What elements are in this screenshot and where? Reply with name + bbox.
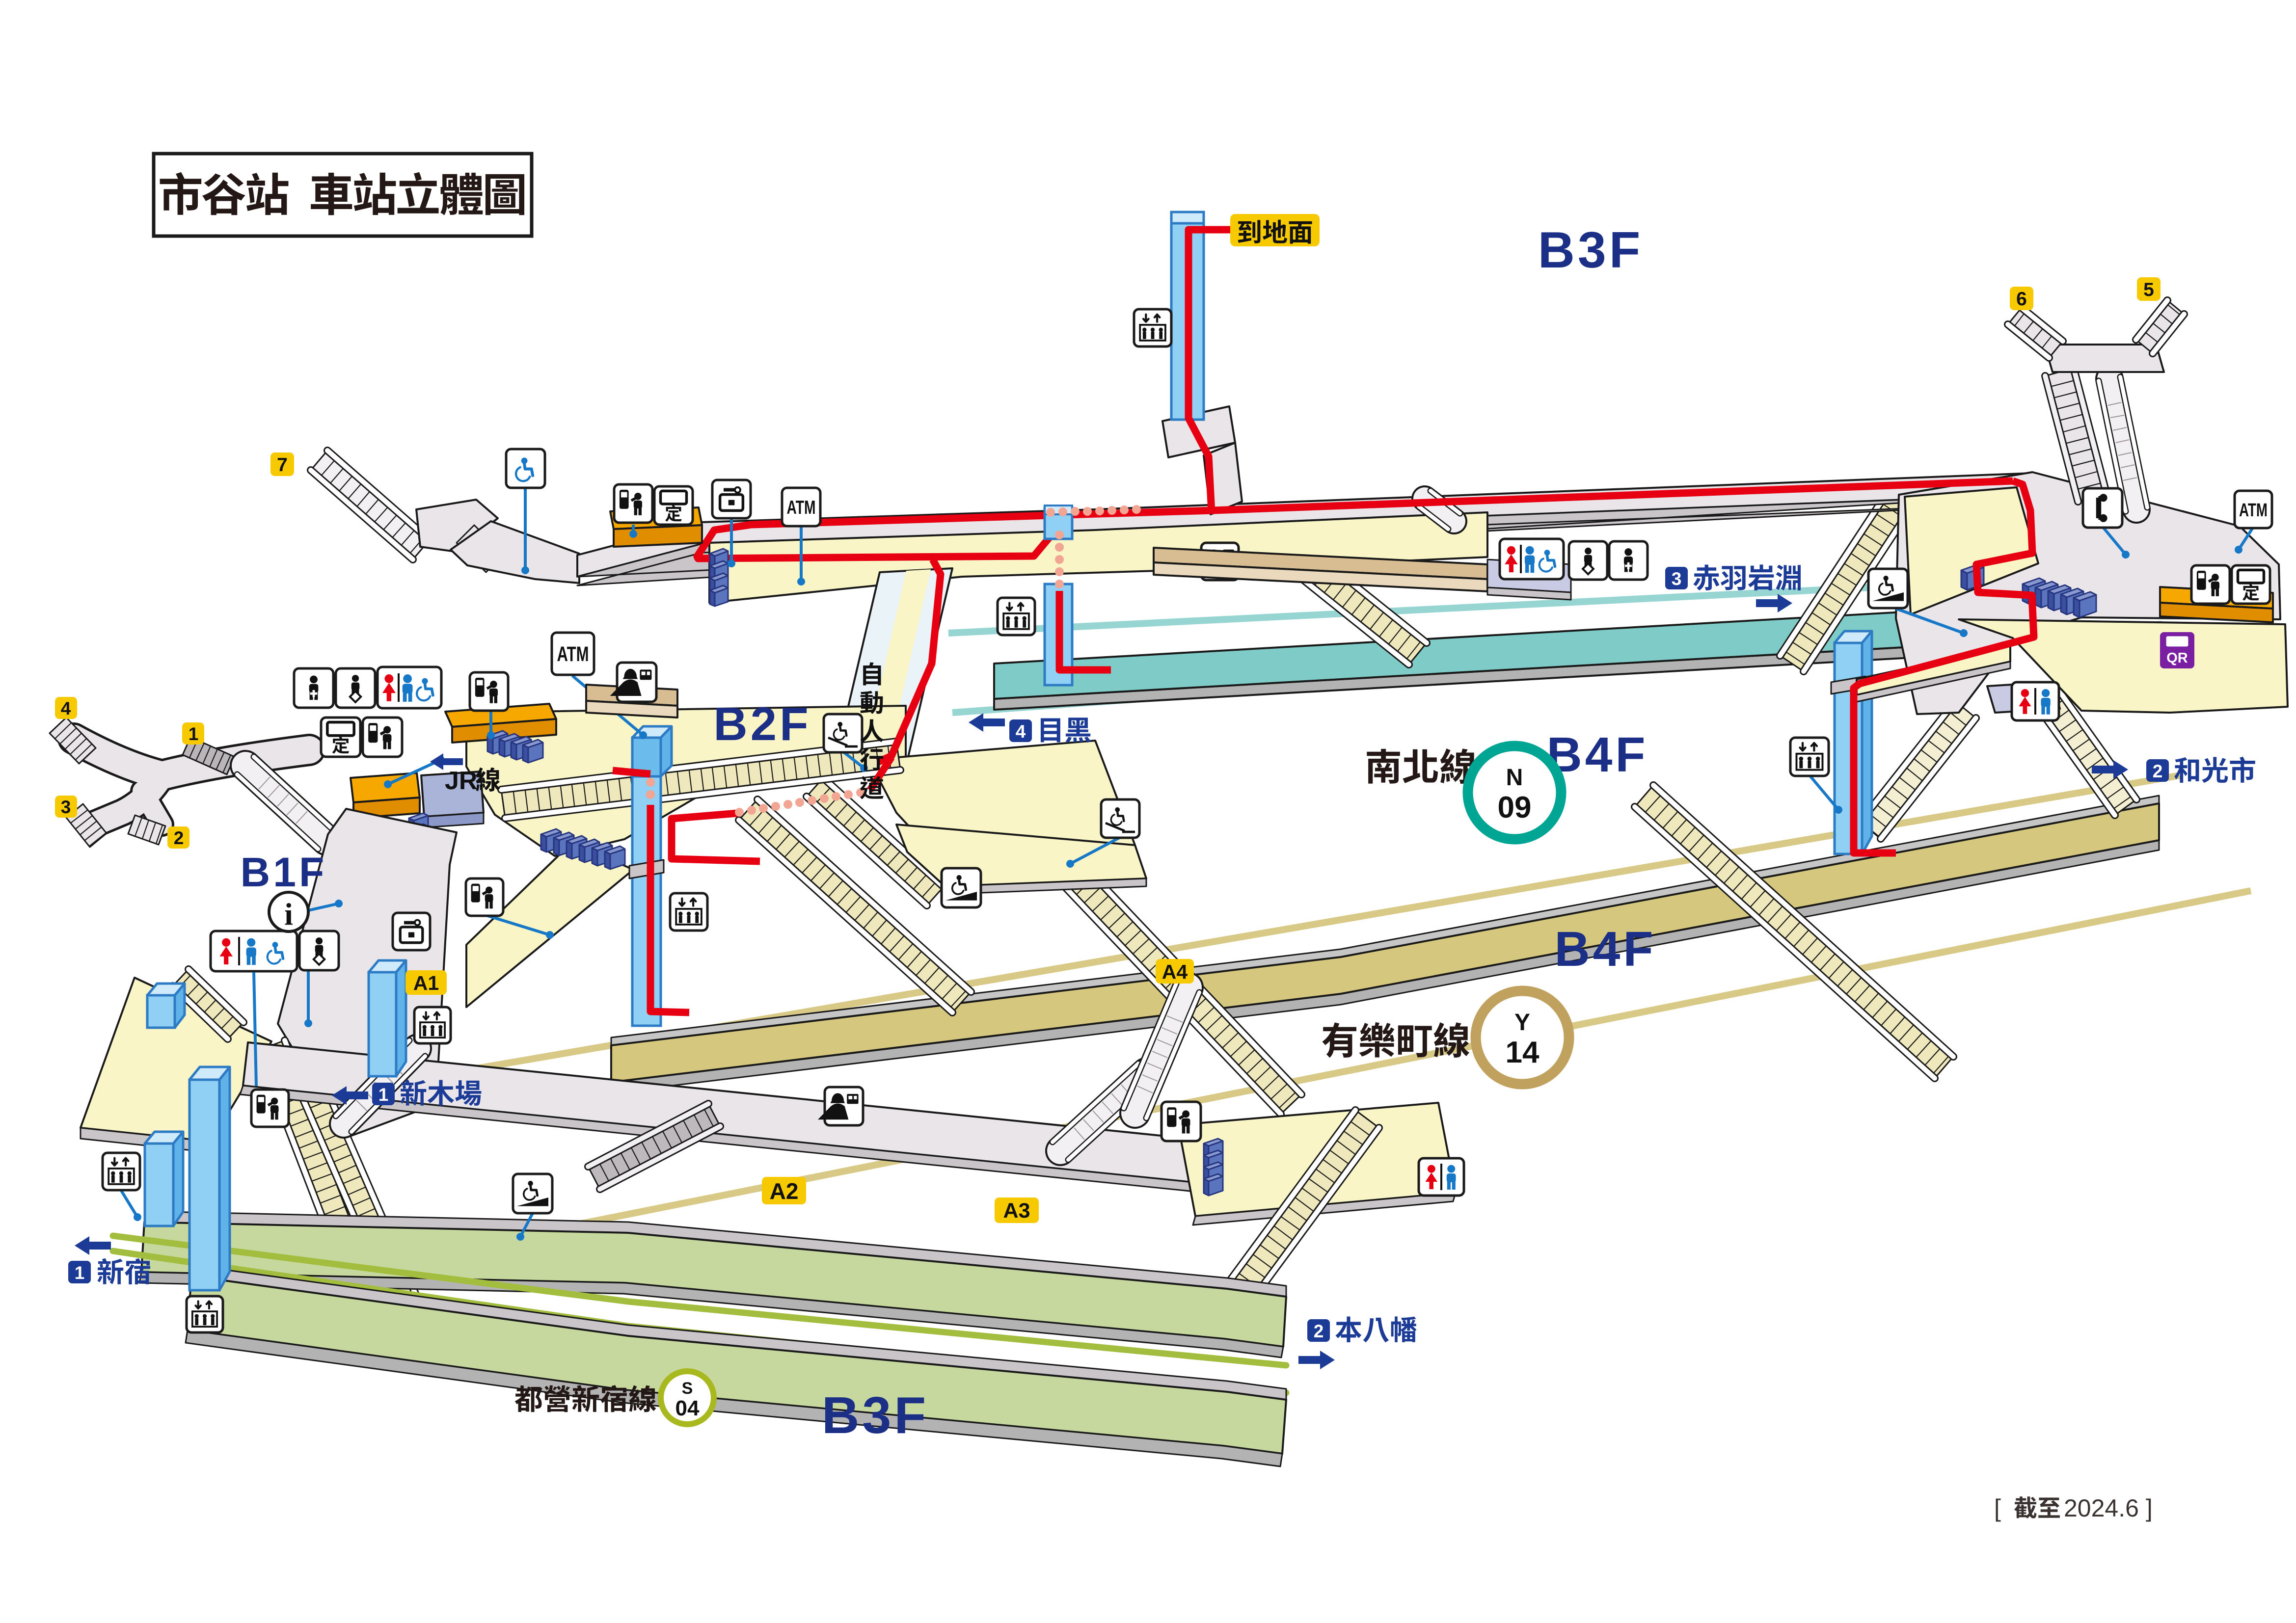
svg-text:ATM: ATM	[557, 642, 589, 666]
svg-text:Y: Y	[1514, 1010, 1530, 1036]
svg-text:4: 4	[61, 698, 71, 718]
svg-text:[: [	[1994, 1494, 2001, 1522]
svg-text:6: 6	[2016, 289, 2027, 310]
svg-text:ATM: ATM	[787, 497, 816, 518]
svg-text:2024.6 ]: 2024.6 ]	[2064, 1494, 2153, 1522]
svg-text:JR: JR	[445, 767, 477, 795]
svg-text:N: N	[1506, 765, 1523, 791]
svg-text:ATM: ATM	[2239, 500, 2268, 521]
svg-text:B3F: B3F	[822, 1386, 929, 1444]
svg-text:1: 1	[189, 724, 199, 744]
svg-text:4: 4	[1016, 721, 1026, 742]
svg-text:B4F: B4F	[1555, 922, 1656, 977]
svg-text:A1: A1	[413, 972, 439, 994]
svg-text:5: 5	[2143, 279, 2154, 300]
svg-text:A4: A4	[1162, 960, 1188, 983]
svg-text:3: 3	[1672, 569, 1682, 589]
svg-text:QR: QR	[2166, 650, 2188, 666]
svg-text:i: i	[284, 897, 293, 931]
svg-text:A3: A3	[1003, 1199, 1030, 1223]
svg-text:2: 2	[1314, 1321, 1324, 1341]
svg-text:2: 2	[2153, 761, 2163, 781]
svg-text:1: 1	[75, 1263, 85, 1283]
svg-text:2: 2	[174, 828, 184, 848]
svg-text:B3F: B3F	[1538, 222, 1643, 279]
svg-text:A2: A2	[770, 1178, 799, 1204]
svg-text:04: 04	[675, 1396, 700, 1420]
svg-text:B1F: B1F	[241, 849, 327, 895]
svg-text:1: 1	[378, 1085, 389, 1105]
svg-text:7: 7	[277, 454, 288, 476]
svg-text:09: 09	[1498, 791, 1532, 825]
svg-text:3: 3	[61, 797, 71, 817]
svg-text:S: S	[682, 1379, 693, 1398]
svg-text:14: 14	[1506, 1036, 1540, 1069]
svg-text:B2F: B2F	[713, 698, 811, 750]
